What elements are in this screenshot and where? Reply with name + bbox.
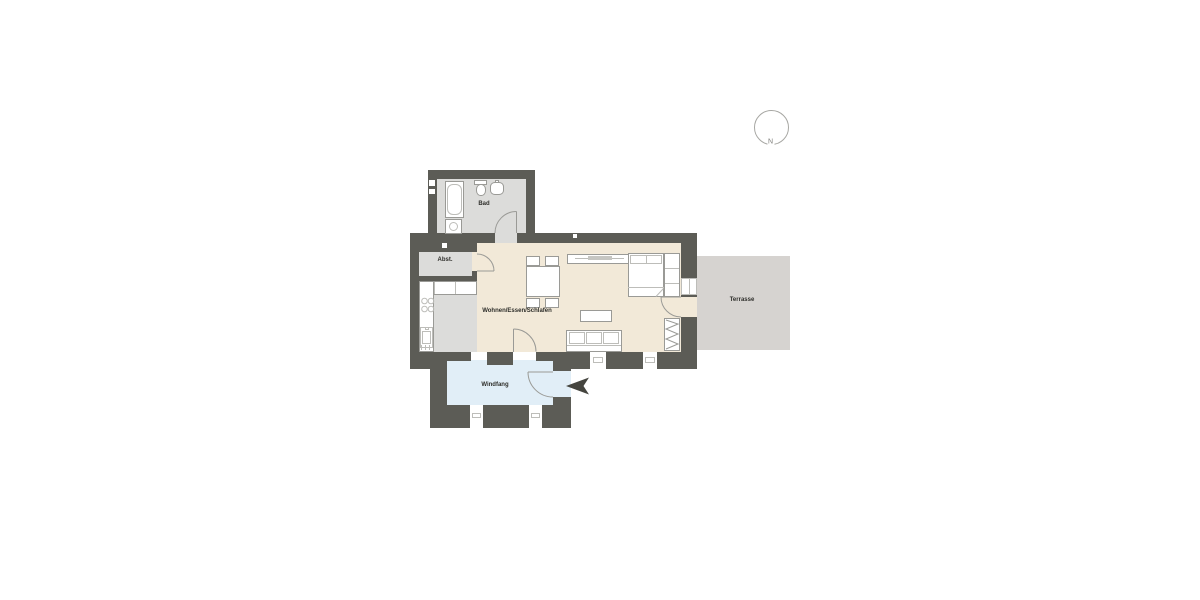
room-label-wohnen: Wohnen/Essen/Schlafen xyxy=(482,308,552,314)
stove-burner xyxy=(422,298,428,304)
room-label-terrasse: Terrasse xyxy=(730,297,755,303)
door-arc-entrance xyxy=(528,372,553,397)
door-arc-terrace xyxy=(661,297,681,317)
plan-overlay xyxy=(0,0,1200,600)
door-arc-windfang xyxy=(514,329,537,352)
entrance-arrow-icon xyxy=(566,378,589,395)
north-label: N xyxy=(767,139,774,146)
room-label-bad: Bad xyxy=(478,201,489,207)
door-arc-bathroom xyxy=(495,212,517,234)
clothes-rail-zigzag xyxy=(666,320,678,349)
stove-burner xyxy=(428,306,434,312)
stove-burner xyxy=(428,298,434,304)
stove-burner xyxy=(422,306,428,312)
floorplan: N Bad Abst. Wohnen/Essen/Schlafen Windfa… xyxy=(0,0,1200,600)
room-label-abst: Abst. xyxy=(438,257,453,263)
bed-fold-line xyxy=(656,289,664,297)
door-arc-storage xyxy=(477,254,494,271)
room-label-windfang: Windfang xyxy=(481,382,508,388)
